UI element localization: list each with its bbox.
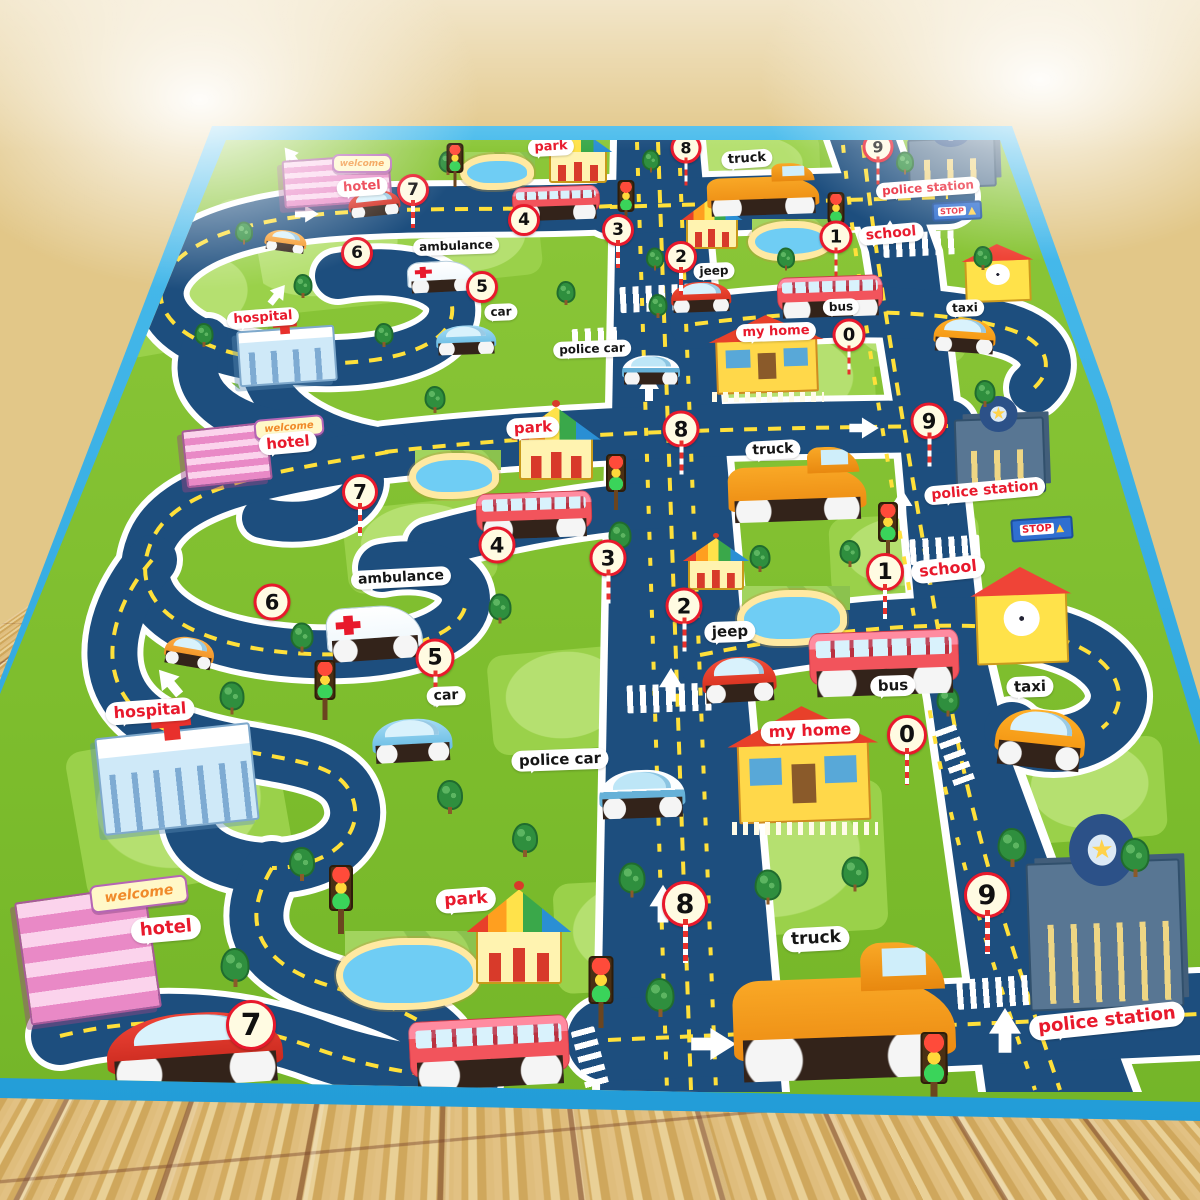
tree bbox=[437, 780, 463, 810]
carousel bbox=[686, 217, 738, 249]
welcome-text: welcome bbox=[340, 159, 385, 169]
traffic-light bbox=[447, 143, 464, 173]
number-badge-8: 8 bbox=[663, 411, 700, 448]
label-police-car: police car bbox=[511, 748, 609, 773]
number-badge-7: 7 bbox=[226, 1000, 276, 1050]
number-badge-2: 2 bbox=[666, 588, 703, 625]
tree bbox=[425, 386, 446, 410]
number-badge-7: 7 bbox=[397, 174, 429, 206]
traffic-light bbox=[828, 192, 845, 224]
my-home-house bbox=[715, 335, 819, 395]
tree bbox=[750, 545, 771, 569]
number-badge-6: 6 bbox=[341, 237, 373, 269]
tree bbox=[1121, 838, 1150, 872]
tree bbox=[291, 623, 314, 650]
welcome-text: welcome bbox=[104, 882, 175, 906]
bus bbox=[475, 490, 592, 532]
tree bbox=[646, 248, 664, 269]
tree bbox=[195, 323, 214, 345]
tree bbox=[294, 274, 313, 296]
school-building bbox=[975, 590, 1069, 665]
label-car: car bbox=[484, 303, 518, 321]
police-station-building bbox=[1025, 858, 1184, 1011]
label-my-home: my home bbox=[736, 322, 817, 343]
tree bbox=[896, 152, 914, 173]
carousel bbox=[476, 928, 562, 984]
label-truck: truck bbox=[782, 925, 850, 952]
number-badge-9: 9 bbox=[911, 403, 948, 440]
my-home-house bbox=[737, 738, 872, 825]
number-badge-3: 3 bbox=[590, 540, 627, 577]
hospital-building bbox=[94, 722, 259, 836]
tree bbox=[646, 978, 675, 1012]
label-park: park bbox=[506, 416, 560, 440]
stop-text: STOP bbox=[938, 206, 966, 216]
tree bbox=[557, 281, 576, 303]
label-ambulance: ambulance bbox=[413, 236, 499, 256]
tree bbox=[649, 294, 668, 316]
number-badge-5: 5 bbox=[466, 271, 498, 303]
traffic-light bbox=[589, 956, 614, 1004]
traffic-light bbox=[618, 180, 635, 212]
number-badge-5: 5 bbox=[416, 639, 455, 678]
label-taxi: taxi bbox=[1006, 676, 1054, 699]
traffic-light bbox=[315, 660, 336, 700]
number-badge-8: 8 bbox=[662, 881, 708, 927]
tree bbox=[512, 823, 538, 853]
truck bbox=[727, 464, 866, 513]
tree bbox=[842, 857, 869, 888]
bus bbox=[408, 1014, 571, 1078]
number-badge-2: 2 bbox=[665, 241, 697, 273]
tree bbox=[974, 246, 993, 268]
tree bbox=[642, 150, 660, 171]
pond bbox=[467, 161, 527, 183]
tree bbox=[289, 847, 315, 877]
number-badge-6: 6 bbox=[254, 584, 291, 621]
stop-sign: STOP bbox=[932, 200, 983, 222]
label-bus: bus bbox=[870, 675, 916, 698]
number-badge-9: 9 bbox=[964, 872, 1010, 918]
label-jeep: jeep bbox=[704, 620, 756, 643]
tree bbox=[221, 948, 250, 982]
tree bbox=[998, 828, 1027, 862]
picket-fence bbox=[732, 822, 878, 835]
tree bbox=[975, 380, 996, 404]
warning-triangle-icon bbox=[1056, 523, 1065, 532]
tree bbox=[619, 863, 646, 894]
welcome-sign: welcome bbox=[332, 154, 392, 173]
picket-fence bbox=[712, 392, 824, 402]
stop-text: STOP bbox=[1020, 523, 1055, 536]
stop-sign: STOP bbox=[1010, 515, 1073, 542]
number-badge-3: 3 bbox=[602, 214, 634, 246]
label-truck: truck bbox=[721, 148, 773, 169]
warning-triangle-icon bbox=[968, 206, 976, 214]
pond bbox=[416, 460, 492, 492]
traffic-light bbox=[921, 1032, 948, 1084]
label-bus: bus bbox=[823, 298, 860, 316]
label-hotel: hotel bbox=[336, 176, 388, 197]
traffic-light bbox=[329, 865, 353, 911]
traffic-light bbox=[878, 502, 898, 542]
number-badge-7: 7 bbox=[342, 474, 378, 510]
police-car bbox=[622, 356, 680, 379]
label-jeep: jeep bbox=[693, 262, 735, 280]
tree bbox=[777, 248, 795, 269]
tree bbox=[840, 540, 861, 564]
label-police-car: police car bbox=[553, 339, 631, 358]
tree bbox=[220, 682, 245, 711]
carousel bbox=[519, 436, 593, 480]
number-badge-0: 0 bbox=[887, 715, 927, 755]
tree bbox=[375, 323, 394, 345]
label-park: park bbox=[435, 886, 497, 914]
tree bbox=[755, 870, 782, 901]
label-truck: truck bbox=[745, 439, 801, 461]
label-my-home: my home bbox=[760, 718, 859, 744]
number-badge-4: 4 bbox=[479, 527, 516, 564]
number-badge-0: 0 bbox=[833, 319, 866, 352]
hospital-building bbox=[236, 325, 338, 388]
carousel bbox=[688, 558, 744, 590]
number-badge-1: 1 bbox=[866, 553, 904, 591]
number-badge-1: 1 bbox=[820, 221, 853, 254]
number-badge-4: 4 bbox=[508, 204, 540, 236]
traffic-light bbox=[606, 454, 626, 492]
label-car: car bbox=[426, 686, 465, 706]
tree bbox=[489, 594, 512, 621]
pond bbox=[343, 945, 473, 1003]
tree bbox=[235, 222, 253, 243]
label-taxi: taxi bbox=[946, 299, 984, 317]
product-photo-scene: welcome welcome welcome bbox=[0, 0, 1200, 1200]
truck bbox=[707, 175, 820, 209]
crosswalk bbox=[627, 683, 714, 714]
